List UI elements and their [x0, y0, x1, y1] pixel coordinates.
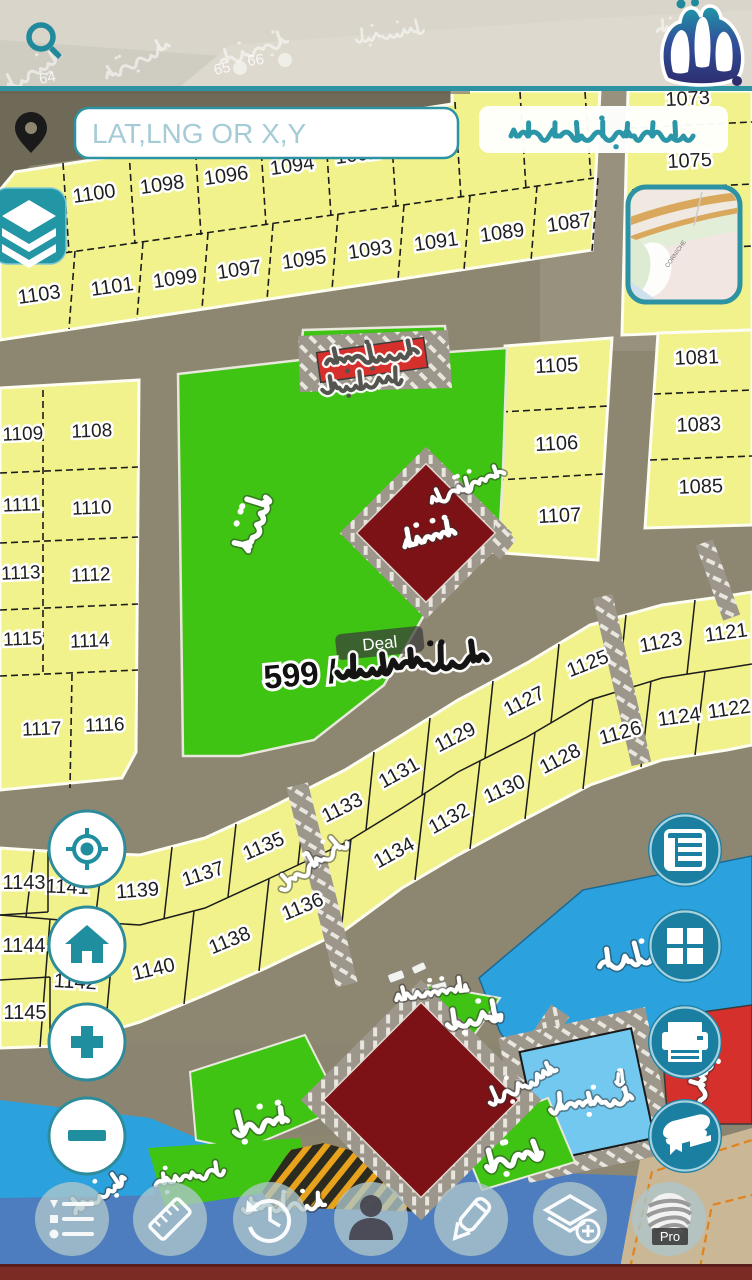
svg-text:LAT,LNG OR X,Y: LAT,LNG OR X,Y: [92, 118, 307, 149]
svg-text:1139: 1139: [115, 878, 160, 903]
svg-text:1143: 1143: [2, 872, 45, 894]
svg-text:1144: 1144: [2, 935, 45, 957]
svg-text:1114: 1114: [70, 630, 111, 652]
svg-text:1083: 1083: [676, 413, 721, 437]
svg-text:1115: 1115: [3, 628, 43, 650]
svg-text:1110: 1110: [72, 497, 112, 519]
svg-text:1107: 1107: [538, 504, 582, 528]
svg-text:1106: 1106: [535, 432, 579, 456]
svg-text:1113: 1113: [1, 562, 41, 584]
svg-text:64: 64: [38, 68, 57, 88]
svg-text:1116: 1116: [85, 714, 125, 736]
svg-text:599 /: 599 /: [262, 652, 338, 695]
svg-text:1105: 1105: [535, 354, 579, 378]
svg-text:1108: 1108: [71, 420, 113, 442]
svg-text:1109: 1109: [2, 423, 44, 445]
svg-text:1085: 1085: [678, 475, 723, 499]
svg-text:1145: 1145: [3, 1002, 46, 1024]
svg-text:1081: 1081: [674, 346, 719, 370]
svg-text:Pro: Pro: [660, 1229, 680, 1244]
svg-text:1112: 1112: [71, 564, 111, 586]
svg-text:1117: 1117: [22, 718, 62, 740]
svg-text:1111: 1111: [2, 494, 41, 516]
svg-text:66: 66: [246, 51, 265, 70]
